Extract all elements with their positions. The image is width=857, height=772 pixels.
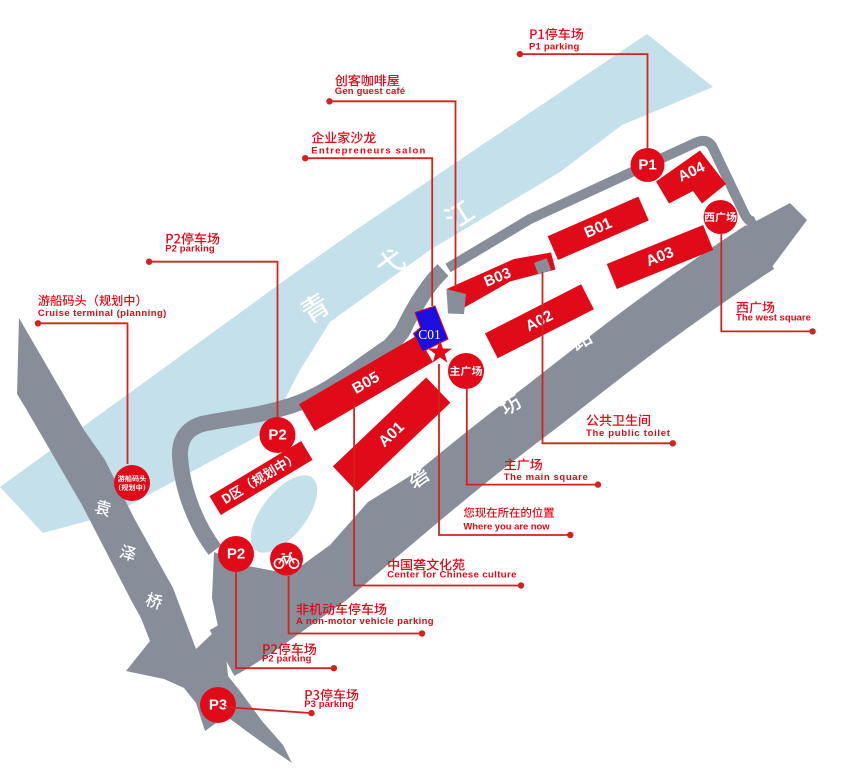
svg-text:Center for Chinese culture: Center for Chinese culture: [387, 570, 517, 581]
svg-text:The west square: The west square: [736, 313, 811, 324]
svg-text:P3 parking: P3 parking: [304, 699, 354, 710]
svg-text:The main square: The main square: [504, 472, 589, 483]
svg-text:C01: C01: [418, 327, 441, 342]
svg-text:The public toilet: The public toilet: [586, 428, 671, 439]
svg-text:P1 parking: P1 parking: [529, 41, 579, 52]
svg-text:P2: P2: [268, 427, 286, 444]
svg-text:Where you are now: Where you are now: [463, 522, 550, 533]
svg-text:Gen guest café: Gen guest café: [335, 86, 406, 97]
svg-text:P1: P1: [638, 157, 656, 174]
svg-text:P2 parking: P2 parking: [165, 244, 215, 255]
svg-text:Entrepreneurs salon: Entrepreneurs salon: [311, 146, 426, 157]
svg-text:B03: B03: [482, 264, 514, 290]
svg-text:P3: P3: [209, 697, 227, 714]
svg-text:P2 parking: P2 parking: [262, 654, 312, 665]
svg-text:P2: P2: [227, 546, 245, 563]
svg-text:Cruise terminal (planning): Cruise terminal (planning): [38, 308, 167, 319]
svg-text:A non-motor vehicle parking: A non-motor vehicle parking: [296, 616, 434, 627]
